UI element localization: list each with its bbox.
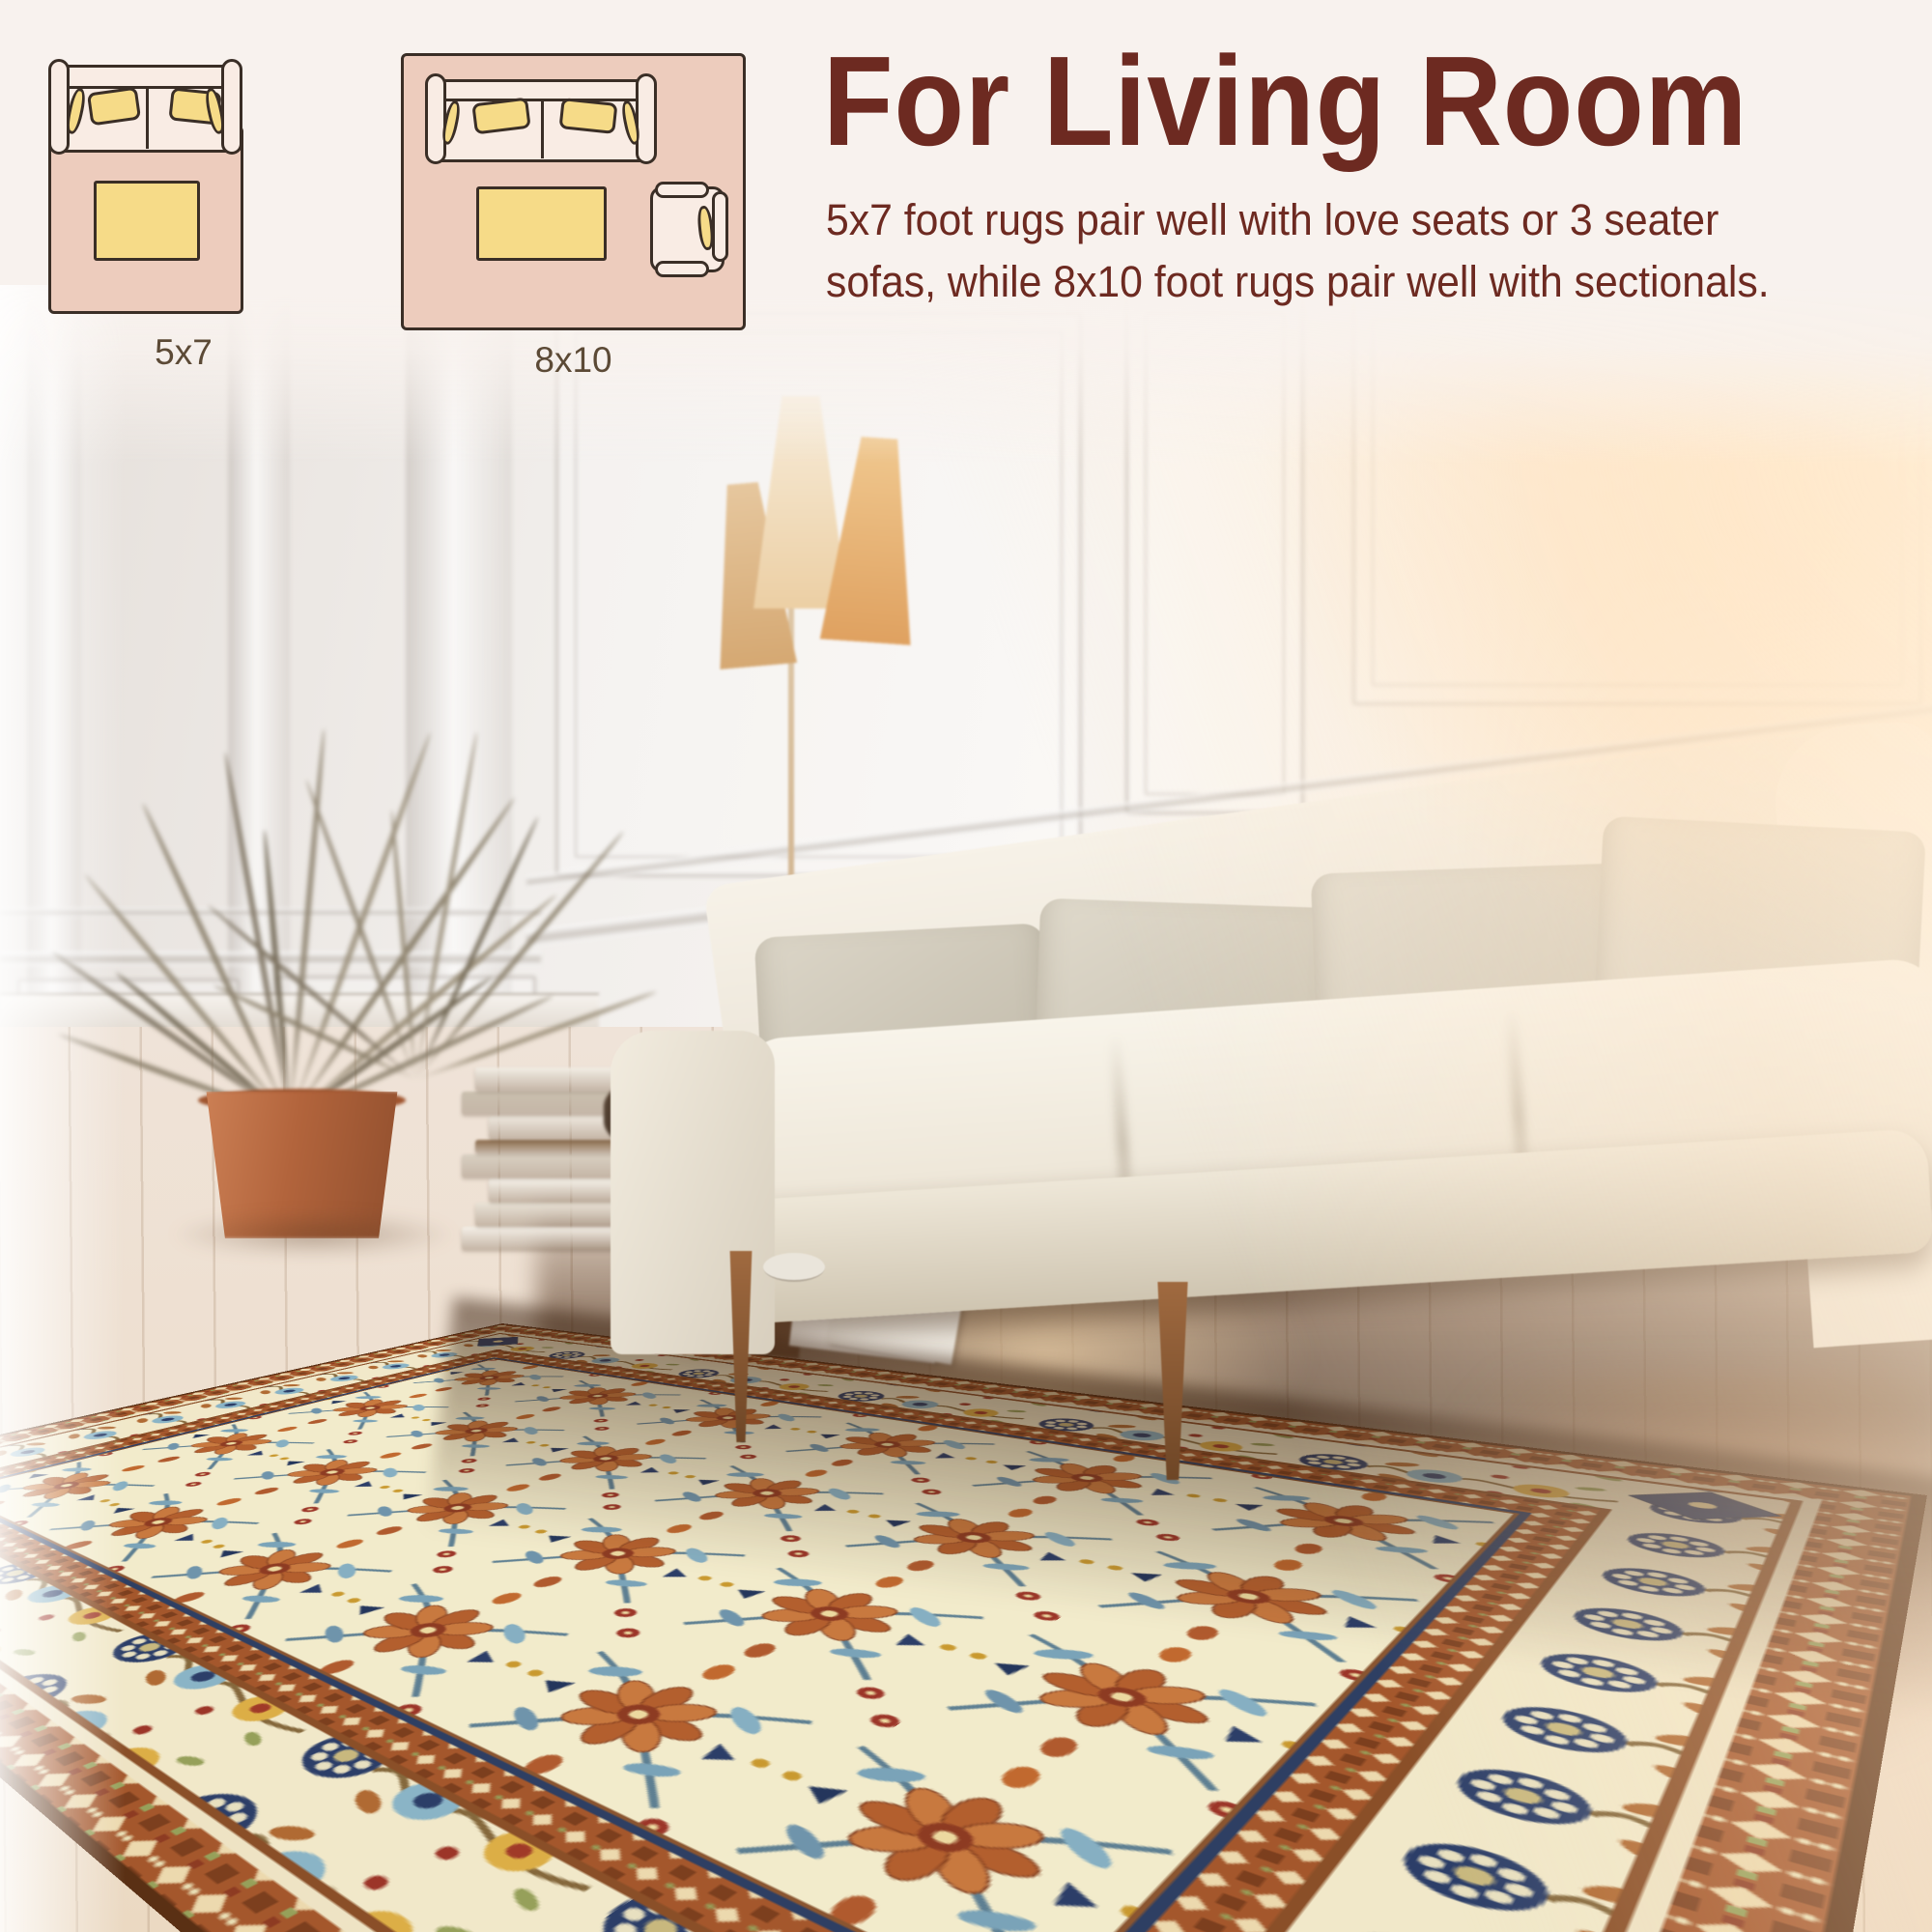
pot-shadow (169, 1212, 459, 1257)
diagram-armchair-arm (655, 261, 709, 277)
diagram-coffee-table (94, 181, 200, 261)
diagram-sofa-arm (636, 73, 657, 164)
diagram-sofa-divider (541, 100, 544, 158)
diagram-pillow (558, 98, 617, 134)
description-line-2: sofas, while 8x10 foot rugs pair well wi… (826, 251, 1770, 313)
diagram-size-label: 5x7 (58, 332, 309, 373)
diagram-sofa-top-view (56, 65, 235, 153)
headline: For Living Room (823, 35, 1747, 169)
diagram-coffee-table (476, 186, 607, 261)
living-room-photo (0, 285, 1932, 1932)
diagram-sofa-arm (48, 59, 70, 155)
diagram-sofa-divider (146, 88, 149, 149)
header-section: 5x7 8x10 (0, 0, 1932, 425)
diagram-sofa-arm (221, 59, 242, 155)
diagram-sofa-top-view (433, 79, 649, 162)
rug-product-infographic: 5x7 8x10 (0, 0, 1932, 1932)
diagram-armchair (650, 186, 724, 272)
diagram-size-label: 8x10 (401, 340, 746, 381)
diagram-armchair-back (712, 191, 728, 262)
diagram-sofa-arm (425, 73, 446, 164)
description-line-1: 5x7 foot rugs pair well with love seats … (826, 189, 1770, 251)
diagram-pillow (87, 87, 141, 127)
lamp-base-disc (763, 1253, 825, 1282)
sofa-arm-left (611, 1031, 775, 1354)
diagram-armchair-arm (655, 182, 709, 198)
description: 5x7 foot rugs pair well with love seats … (826, 189, 1770, 313)
